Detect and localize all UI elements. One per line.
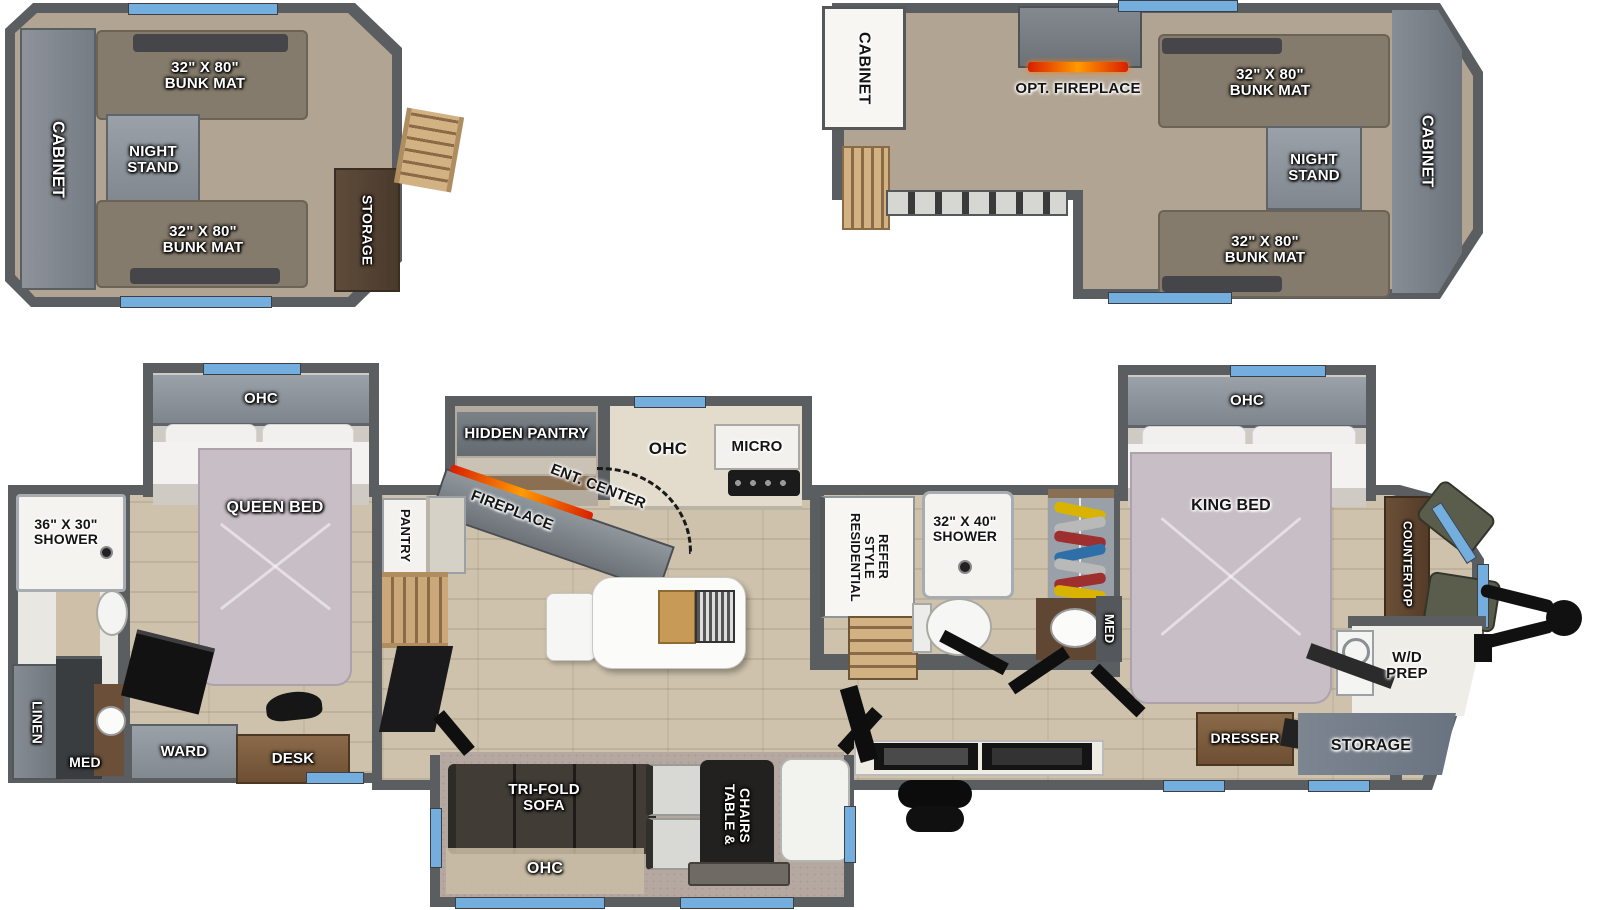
mid-stairs [848, 616, 918, 680]
king-bed-label: KING BED [1130, 494, 1332, 518]
loft-rear-cabinet: CABINET [20, 28, 96, 290]
queen-ohc-cabinet: OHC [153, 375, 369, 426]
loft-front-cabinet-right: CABINET [1392, 10, 1462, 293]
island-cutting-board [658, 590, 696, 644]
bottom-sink-basin [992, 748, 1082, 765]
loft-front-bunk-top-label: 32" X 80" BUNK MAT [1185, 55, 1355, 111]
kitchen-ohc-label: OHC [628, 436, 708, 462]
loft-front-night-stand-label: NIGHT STAND [1268, 128, 1360, 208]
mid-med-cabinet: MED [1096, 596, 1122, 662]
rear-shower-drain [100, 546, 113, 559]
king-slideout-window [1230, 365, 1326, 377]
king-room-window-bottom [1163, 780, 1225, 792]
queen-bed [198, 448, 352, 686]
bottom-cooktop [874, 743, 978, 770]
loft-rear-storage: STORAGE [334, 168, 400, 292]
loft-front-bunk-top-headboard [1162, 38, 1282, 54]
king-ohc-label: OHC [1128, 377, 1366, 425]
loft-front-cabinet-left: CABINET [822, 6, 906, 130]
loft-front-cabinet-right-label: CABINET [1392, 10, 1462, 293]
rear-med-label: MED [52, 752, 118, 774]
dresser-label: DRESSER [1198, 714, 1292, 764]
loft-front-fireplace-flame [1028, 62, 1128, 72]
queen-ohc-label: OHC [153, 375, 369, 423]
refrigerator: RESIDENTIAL STYLE REFER [820, 496, 915, 618]
loft-rear-night-stand-label: NIGHT STAND [108, 116, 198, 204]
sofa-window-bottom-2 [680, 897, 794, 909]
island-sink-grate [695, 590, 735, 643]
mid-med-label: MED [1096, 596, 1122, 662]
mid-shower-label: 32" X 40" SHOWER [924, 506, 1006, 552]
loft-front-cabinet-left-label: CABINET [825, 9, 903, 127]
loft-front-fireplace-label: OPT. FIREPLACE [1003, 78, 1153, 100]
hall-pantry-cabinet [426, 496, 466, 574]
loft-rear-cabinet-label: CABINET [22, 30, 94, 288]
sofa-window-right [844, 806, 856, 863]
loft-front-bunk-bottom-label: 32" X 80" BUNK MAT [1180, 222, 1350, 278]
loft-front-stairs [886, 190, 1068, 216]
hall-pantry-label: PANTRY [384, 500, 426, 572]
rear-bath-sink [96, 706, 126, 736]
bedroom-window-bottom [306, 772, 364, 784]
island-side-table [546, 593, 596, 661]
sofa-window-left [430, 808, 442, 868]
king-bed [1130, 452, 1332, 704]
loft-rear-ladder [394, 108, 464, 193]
dinette-table-base [688, 862, 790, 886]
refrigerator-label: RESIDENTIAL STYLE REFER [825, 498, 913, 616]
mid-shower-drain [958, 560, 972, 574]
dresser: DRESSER [1196, 712, 1294, 766]
loft-stairs [382, 572, 448, 648]
loft-rear-bunk-bottom-footboard [130, 268, 280, 284]
front-storage-window [1308, 780, 1370, 792]
loft-front-stair-railing [842, 146, 890, 230]
loft-front-window-bottom [1108, 292, 1232, 304]
queen-slideout-window [203, 363, 301, 375]
loft-rear-bunk-bottom-label: 32" X 80" BUNK MAT [118, 212, 288, 268]
bedroom-wardrobe: WARD [130, 724, 238, 780]
kitchen-microwave: MICRO [714, 424, 800, 470]
loft-rear-storage-label: STORAGE [336, 170, 398, 290]
bedroom-ward-label: WARD [132, 726, 236, 778]
dinette-table: TABLE & CHAIRS [700, 760, 774, 870]
wd-prep-label: W/D PREP [1362, 644, 1452, 688]
loft-rear-window-bottom [120, 296, 272, 308]
hall-pantry: PANTRY [382, 498, 428, 574]
hitch-ball [1546, 600, 1582, 636]
loft-rear-window-top [128, 3, 278, 15]
queen-bed-label: QUEEN BED [198, 496, 352, 520]
sofa-window-bottom-1 [455, 897, 605, 909]
mid-closet [1048, 489, 1114, 608]
loft-front-bunk-bottom-footboard [1162, 276, 1282, 292]
hidden-pantry-label: HIDDEN PANTRY [457, 412, 596, 456]
entry-step-1 [898, 780, 972, 808]
loft-front-night-stand: NIGHT STAND [1266, 126, 1362, 210]
rear-toilet [96, 590, 128, 636]
dinette-bench [780, 758, 850, 862]
entry-step-2 [906, 806, 964, 832]
sofa-ohc-label: OHC [446, 854, 644, 884]
trifold-sofa-label: TRI-FOLD SOFA [448, 776, 640, 820]
bottom-sink [982, 743, 1092, 770]
loft-rear-night-stand: NIGHT STAND [106, 114, 200, 206]
kitchen-micro-label: MICRO [716, 426, 798, 468]
kitchen-window [634, 396, 706, 408]
kitchen-cooktop [728, 470, 800, 496]
loft-rear-bunk-top-label: 32" X 80" BUNK MAT [120, 48, 290, 104]
bottom-cooktop-inset [884, 748, 968, 765]
mid-bath-sink [1050, 608, 1100, 648]
front-storage-label: STORAGE [1306, 734, 1436, 758]
floorplan-canvas: CABINET 32" X 80" BUNK MAT NIGHT STAND 3… [0, 0, 1600, 910]
king-ohc-cabinet: OHC [1128, 377, 1366, 428]
loft-front-window-top [1118, 0, 1238, 12]
loft-front-fireplace-unit [1018, 6, 1142, 68]
hidden-pantry-cabinet: HIDDEN PANTRY [457, 412, 596, 456]
dinette-table-label: TABLE & CHAIRS [700, 760, 774, 870]
hitch-jack [1474, 634, 1492, 662]
